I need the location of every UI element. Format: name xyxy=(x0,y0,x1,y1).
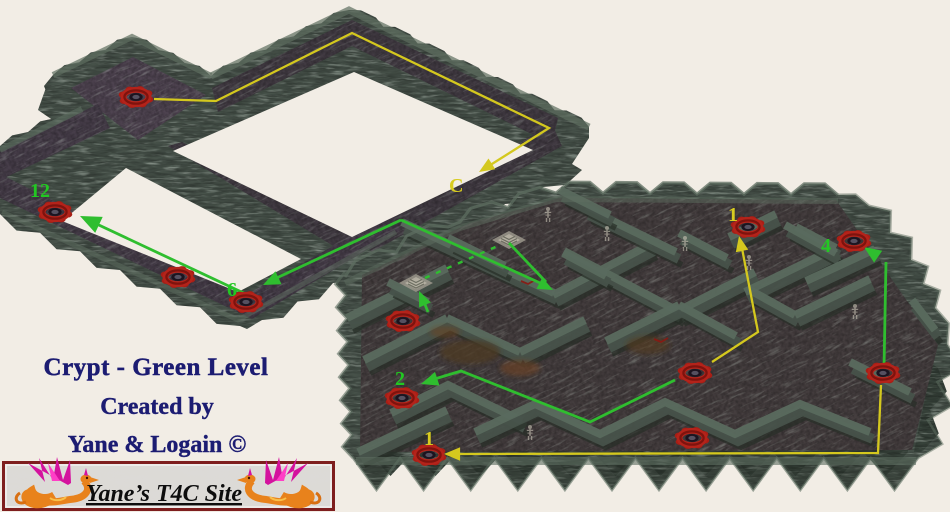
svg-text:C: C xyxy=(449,175,463,197)
svg-text:Created by: Created by xyxy=(100,394,214,420)
svg-text:12: 12 xyxy=(30,180,50,202)
svg-text:1: 1 xyxy=(424,428,434,450)
svg-text:1: 1 xyxy=(728,204,738,226)
svg-text:Crypt - Green Level: Crypt - Green Level xyxy=(44,354,269,381)
svg-text:Yane’s T4C Site: Yane’s T4C Site xyxy=(86,481,242,507)
svg-text:4: 4 xyxy=(821,235,831,257)
svg-text:2: 2 xyxy=(395,368,405,390)
svg-text:Yane & Logain ©: Yane & Logain © xyxy=(68,432,247,458)
svg-text:6: 6 xyxy=(227,279,237,301)
